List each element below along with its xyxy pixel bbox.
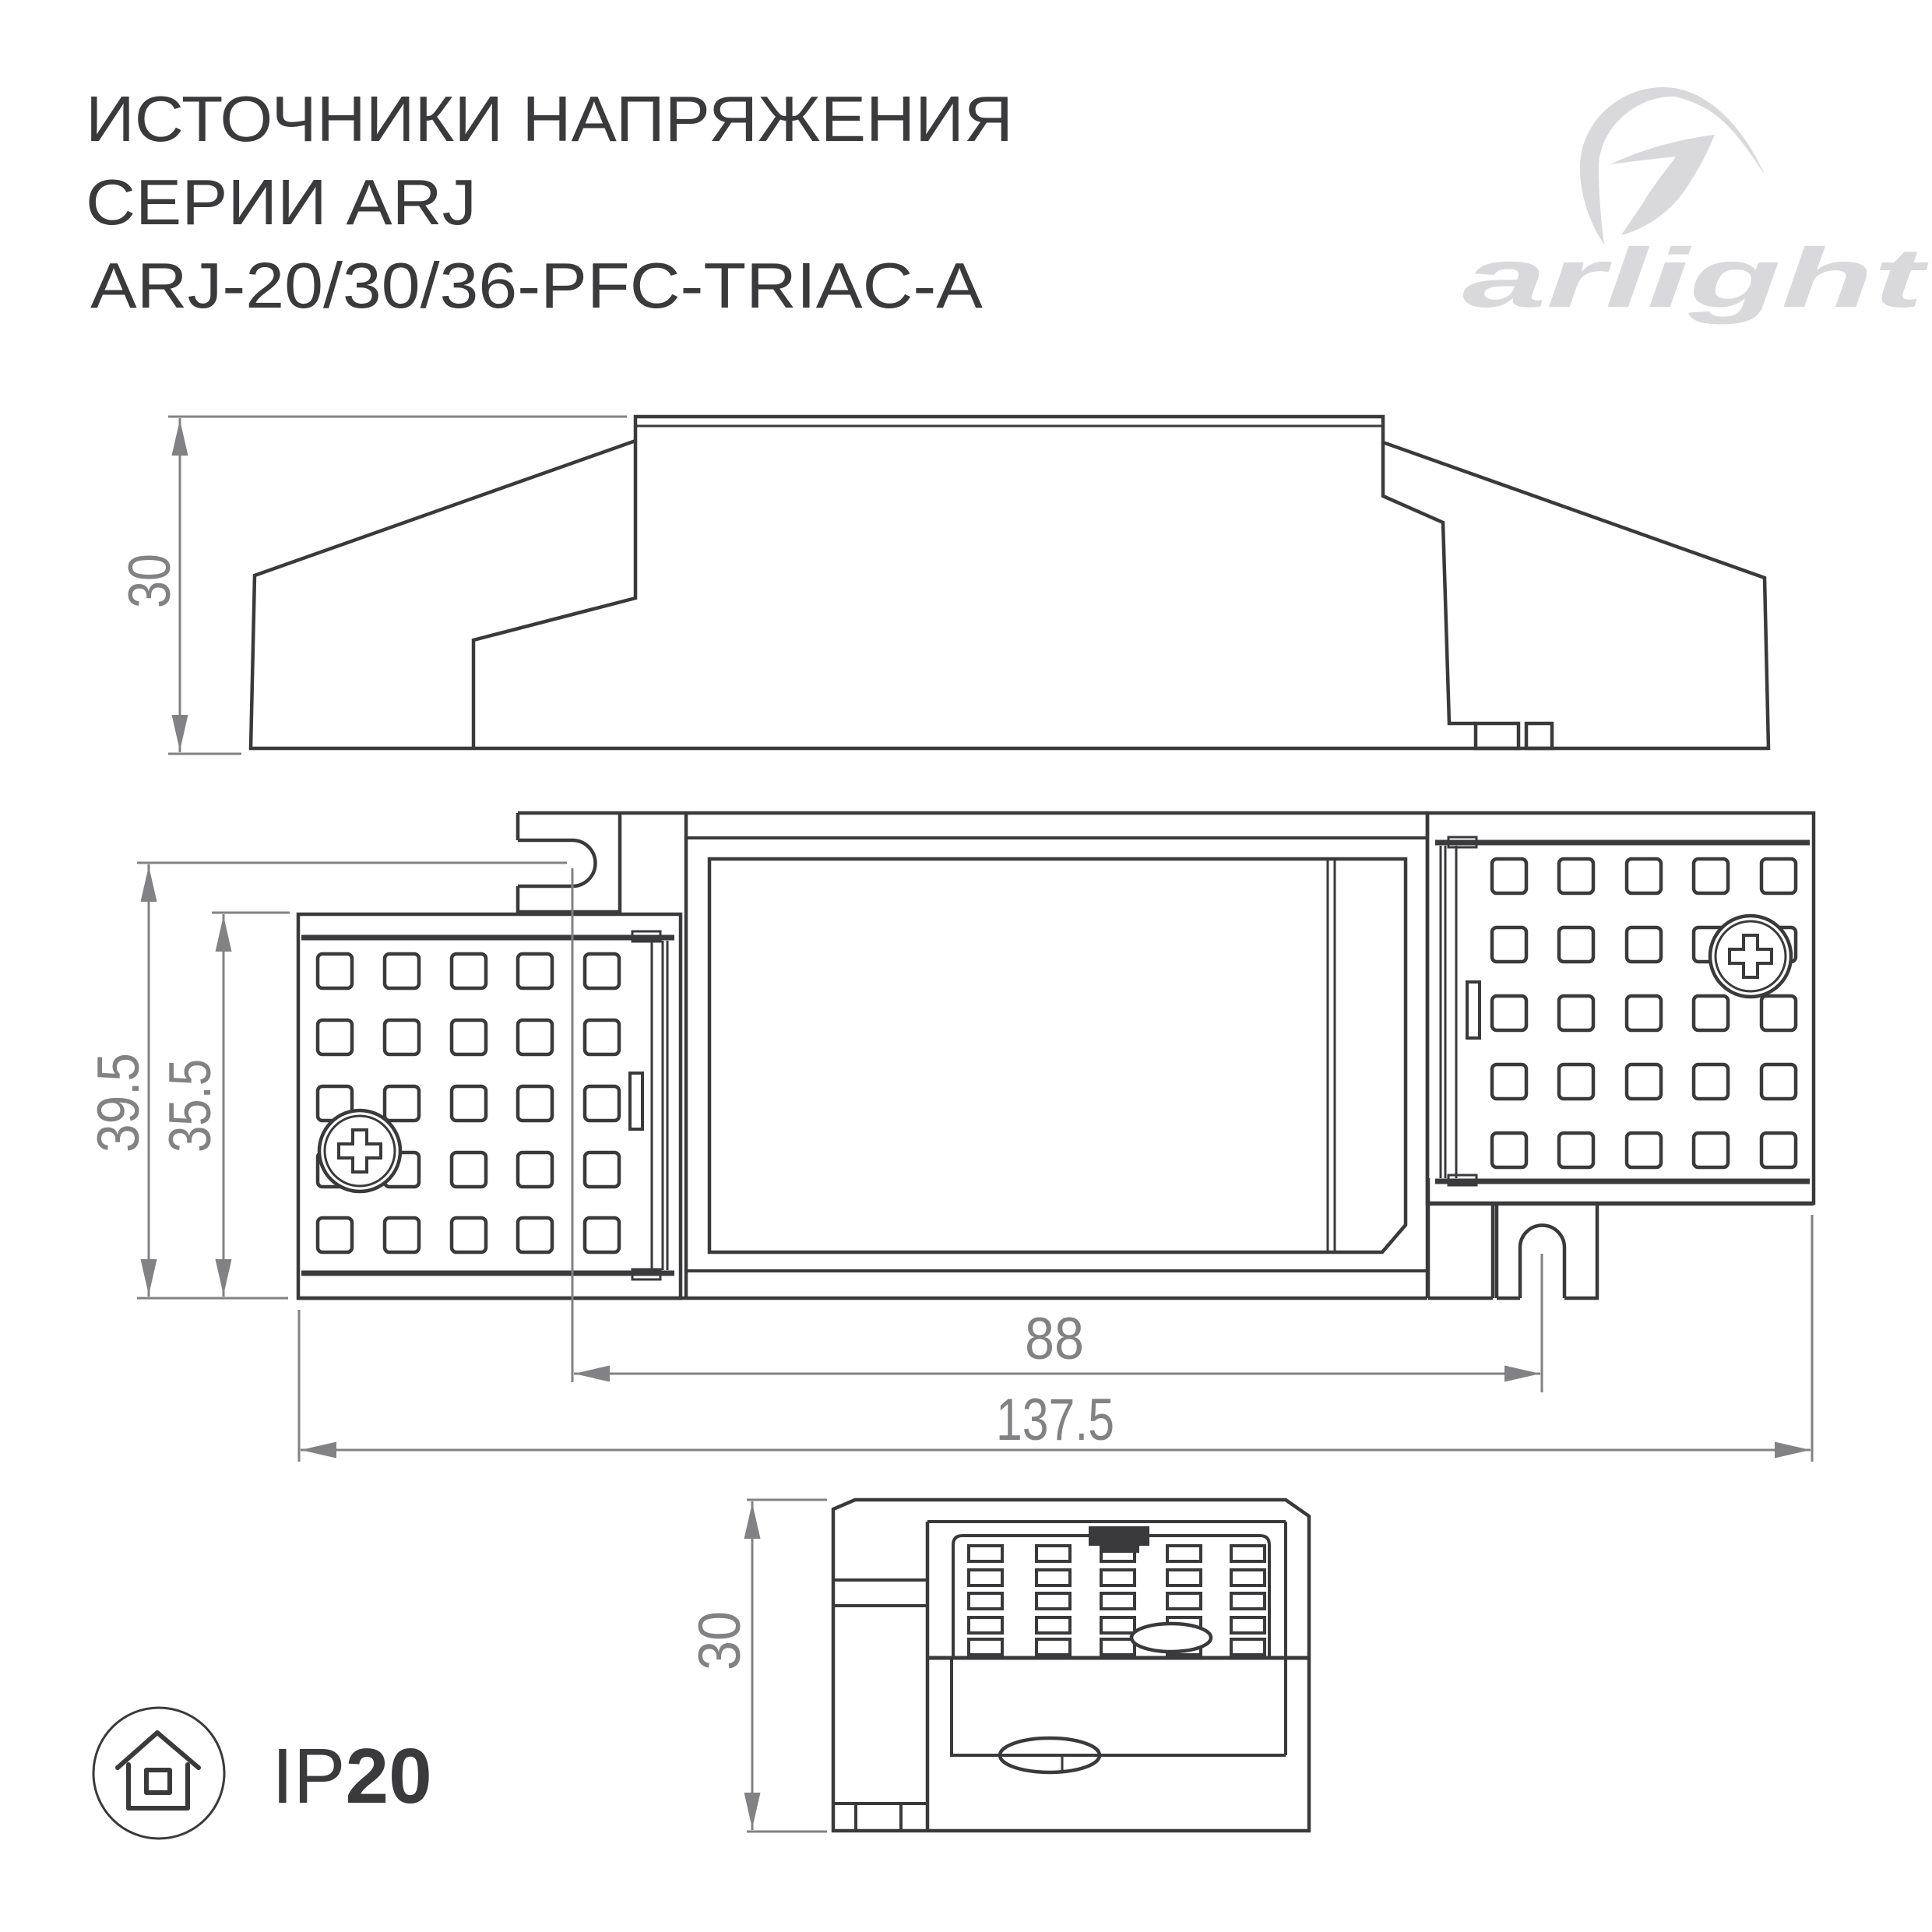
svg-text:ИСТОЧНИКИ НАПРЯЖЕНИЯ: ИСТОЧНИКИ НАПРЯЖЕНИЯ <box>86 83 1013 155</box>
svg-text:35.5: 35.5 <box>157 1059 223 1153</box>
svg-text:137.5: 137.5 <box>996 1387 1114 1453</box>
svg-text:arlight: arlight <box>1462 231 1929 325</box>
svg-text:ARJ-20/30/36-PFC-TRIAC-A: ARJ-20/30/36-PFC-TRIAC-A <box>90 249 984 322</box>
svg-text:IP20: IP20 <box>272 1733 432 1820</box>
svg-text:88: 88 <box>1025 1306 1084 1372</box>
svg-text:39.5: 39.5 <box>86 1053 152 1153</box>
svg-text:СЕРИИ ARJ: СЕРИИ ARJ <box>86 166 477 238</box>
svg-text:30: 30 <box>687 1611 753 1670</box>
svg-text:30: 30 <box>117 554 183 608</box>
